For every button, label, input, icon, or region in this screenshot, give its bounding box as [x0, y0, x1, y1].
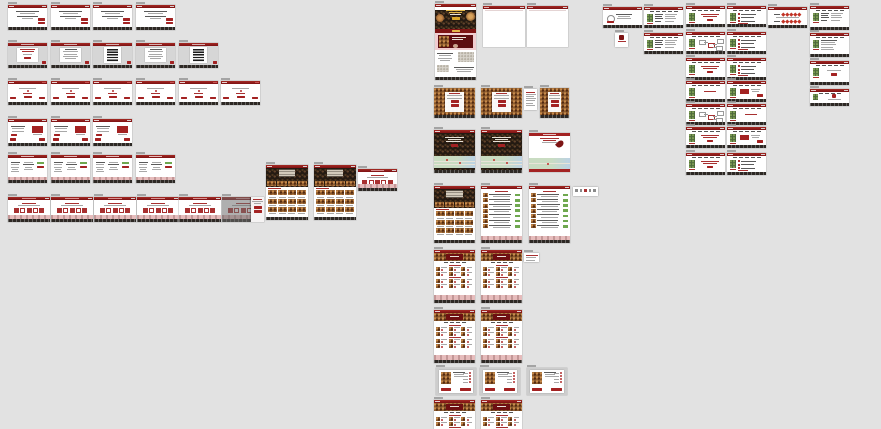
tracking-page-thumbnail[interactable]	[179, 197, 221, 222]
artboard-profile-3[interactable]	[727, 6, 766, 27]
artboard-profile-2[interactable]	[686, 6, 725, 27]
artboard-menugrid-3[interactable]	[434, 310, 475, 363]
artboard-tracking-5[interactable]	[179, 197, 221, 222]
artboard-label[interactable]	[8, 194, 17, 196]
menu-grid-thumbnail[interactable]	[481, 400, 522, 429]
artboard-contact-3[interactable]	[529, 133, 570, 172]
pline	[730, 48, 736, 49]
artboard-label[interactable]	[481, 247, 490, 249]
artboard-gallery-3[interactable]	[434, 186, 475, 243]
artboard-label[interactable]	[8, 40, 17, 42]
artboard-menugrid-1[interactable]	[434, 250, 475, 303]
chip	[707, 166, 713, 169]
hbtn	[761, 128, 765, 130]
artboard-label[interactable]	[51, 152, 60, 154]
pline	[730, 120, 736, 121]
tracking-page-thumbnail[interactable]	[137, 197, 179, 222]
artboard-itemmodal-2[interactable]	[480, 368, 520, 395]
gcell	[326, 199, 335, 206]
artboard-contact-2[interactable]	[481, 130, 522, 173]
artboard-label[interactable]	[481, 85, 490, 87]
artboard-tracking-3[interactable]	[94, 197, 136, 222]
settings-page-thumbnail[interactable]	[603, 7, 642, 28]
artboard-confirm-3[interactable]	[93, 81, 132, 105]
artboard-tracking-2[interactable]	[51, 197, 93, 222]
confirm-page-thumbnail[interactable]	[8, 81, 47, 105]
tracking-page-thumbnail[interactable]	[8, 197, 50, 222]
ln	[144, 11, 167, 12]
artboard-label[interactable]	[93, 78, 102, 80]
profile-blank-thumbnail[interactable]	[727, 104, 766, 125]
artboard-settings[interactable]	[603, 7, 642, 28]
artboard-label[interactable]	[179, 40, 188, 42]
graybody	[136, 46, 175, 65]
receipt-c-thumbnail[interactable]	[93, 43, 132, 68]
receipt-a-thumbnail[interactable]	[8, 43, 47, 68]
artboard-checkout-4[interactable]	[136, 155, 175, 183]
artboard-tracking-mini[interactable]	[358, 169, 397, 191]
chip	[707, 71, 713, 74]
artboard-label[interactable]	[768, 4, 777, 6]
rdot	[514, 329, 516, 331]
artboard-profile-15[interactable]	[686, 153, 725, 175]
artboard-label[interactable]	[483, 3, 492, 5]
artboard-checkout-2[interactable]	[51, 155, 90, 183]
artboard-label[interactable]	[51, 2, 60, 4]
form-page-thumbnail[interactable]	[51, 5, 90, 30]
artboard-login-2[interactable]	[51, 5, 90, 30]
artboard-label[interactable]	[8, 116, 17, 118]
tracking-page-thumbnail[interactable]	[94, 197, 136, 222]
checkout-page-thumbnail[interactable]	[51, 155, 90, 183]
ln	[454, 267, 460, 268]
artboard-label[interactable]	[51, 194, 60, 196]
receipt-b-thumbnail[interactable]	[136, 43, 175, 68]
ln	[776, 17, 799, 18]
photo-login-thumbnail[interactable]	[481, 88, 522, 118]
artboard-label[interactable]	[529, 130, 538, 132]
profile-rows-thumbnail[interactable]	[810, 33, 849, 57]
tdash	[733, 131, 737, 132]
artboard-profile-14[interactable]	[727, 127, 766, 148]
artboard-receipt-2[interactable]	[51, 43, 90, 68]
profile-note-thumbnail[interactable]	[810, 61, 849, 85]
artboard-label[interactable]	[179, 194, 188, 196]
contact-dark-thumbnail[interactable]	[434, 130, 475, 173]
artboard-label[interactable]	[436, 365, 445, 367]
artboard-label[interactable]	[644, 4, 653, 6]
gallery-page-thumbnail[interactable]	[434, 186, 475, 243]
artboard-label[interactable]	[136, 40, 145, 42]
artboard-receipt-1[interactable]	[8, 43, 47, 68]
lrow	[449, 332, 461, 336]
ln	[821, 44, 836, 45]
artboard-profile-10[interactable]	[727, 81, 766, 102]
hlogo	[687, 82, 692, 83]
artboard-itemmodal-1[interactable]	[436, 368, 476, 395]
artboard-checkout-1[interactable]	[8, 155, 47, 183]
blank-page-thumbnail[interactable]	[527, 6, 568, 47]
form-page-thumbnail[interactable]	[93, 5, 132, 30]
artboard-blank-2[interactable]	[527, 6, 568, 47]
profile-info-thumbnail[interactable]	[644, 33, 683, 54]
confirm-page-thumbnail[interactable]	[136, 81, 175, 105]
home-page-thumbnail[interactable]	[435, 4, 476, 80]
artboard-confirm-1[interactable]	[8, 81, 47, 105]
icon-popup-thumbnail[interactable]	[615, 33, 628, 47]
artboard-photologin-3[interactable]	[540, 88, 569, 118]
hbtn	[565, 187, 569, 189]
rcard	[117, 126, 128, 133]
tracking-page-thumbnail[interactable]	[358, 169, 397, 191]
artboard-label[interactable]	[480, 365, 489, 367]
artboard-label[interactable]	[136, 78, 145, 80]
card-page-thumbnail[interactable]	[93, 119, 132, 146]
st	[191, 208, 196, 213]
profile-tabs-text-thumbnail[interactable]	[686, 153, 725, 175]
profile-diagram-thumbnail[interactable]	[686, 104, 725, 125]
artboard-label[interactable]	[727, 124, 736, 126]
menu-grid-thumbnail[interactable]	[481, 250, 522, 303]
artboard-tracking-4[interactable]	[137, 197, 179, 222]
form-page-thumbnail[interactable]	[136, 5, 175, 30]
checkout-page-thumbnail[interactable]	[93, 155, 132, 183]
menu-grid-thumbnail[interactable]	[481, 310, 522, 363]
artboard-label[interactable]	[810, 30, 819, 32]
confirm-page-thumbnail[interactable]	[51, 81, 90, 105]
artboard-photologin-2[interactable]	[481, 88, 522, 118]
confirm-page-thumbnail[interactable]	[93, 81, 132, 105]
form-page-thumbnail[interactable]	[8, 5, 47, 30]
receipt-c-thumbnail[interactable]	[179, 43, 218, 68]
artboard-label[interactable]	[727, 55, 736, 57]
profile-info-thumbnail[interactable]	[810, 6, 849, 30]
lthumb	[461, 332, 465, 336]
profile-tabs-rows-thumbnail[interactable]	[727, 32, 766, 54]
artboard-label[interactable]	[644, 30, 653, 32]
artboard-profile-6[interactable]	[727, 32, 766, 54]
artboard-label[interactable]	[179, 78, 188, 80]
artboard-receipt-4[interactable]	[136, 43, 175, 68]
artboard-label[interactable]	[540, 85, 549, 87]
lthumb	[436, 417, 440, 421]
design-canvas[interactable]	[0, 0, 881, 429]
artboard-label[interactable]	[94, 194, 103, 196]
artboard-label[interactable]	[435, 1, 444, 3]
menu-grid-thumbnail[interactable]	[434, 400, 475, 429]
profile-icon-thumbnail[interactable]	[810, 89, 849, 106]
card	[145, 48, 167, 62]
artboard-label[interactable]	[8, 152, 17, 154]
artboard-login-3[interactable]	[93, 5, 132, 30]
artboard-profile-9[interactable]	[686, 81, 725, 102]
artboard-tracking-6[interactable]	[222, 197, 264, 222]
artboard-label[interactable]	[615, 30, 624, 32]
card-page-thumbnail[interactable]	[51, 119, 90, 146]
artboard-menugrid-2[interactable]	[481, 250, 522, 303]
artboard-label[interactable]	[810, 86, 819, 88]
artboard-label[interactable]	[93, 40, 102, 42]
card-page-thumbnail[interactable]	[8, 119, 47, 146]
modal-gray-thumbnail[interactable]	[480, 368, 520, 395]
artboard-profile-19[interactable]	[810, 61, 849, 85]
artboard-label[interactable]	[434, 127, 443, 129]
artboard-label[interactable]	[524, 86, 533, 88]
pphoto	[689, 134, 695, 142]
checkout-page-thumbnail[interactable]	[8, 155, 47, 183]
artboard-label[interactable]	[51, 116, 60, 118]
rdot	[454, 424, 456, 426]
artboard-ctxmenu-small[interactable]	[524, 253, 539, 262]
contact-light-thumbnail[interactable]	[529, 133, 570, 172]
hbtn	[720, 154, 724, 156]
rdot	[198, 90, 200, 92]
chip	[37, 166, 44, 169]
artboard-ctxmenu-tall[interactable]	[524, 89, 537, 110]
artboard-photologin-1[interactable]	[434, 88, 475, 118]
ln	[55, 169, 62, 170]
artboard-receipt-3[interactable]	[93, 43, 132, 68]
ln	[543, 140, 555, 141]
profile-tabs-rows-thumbnail[interactable]	[727, 153, 766, 175]
artboard-label[interactable]	[481, 397, 490, 399]
pcontent	[655, 13, 681, 24]
artboard-label[interactable]	[358, 166, 367, 168]
tdash	[462, 412, 466, 413]
artboard-confirm-6[interactable]	[221, 81, 260, 105]
artboard-profile-17[interactable]	[810, 6, 849, 30]
artboard-profile-18[interactable]	[810, 33, 849, 57]
artboard-carddetail-3[interactable]	[93, 119, 132, 146]
artboard-label[interactable]	[434, 397, 443, 399]
ln	[526, 94, 536, 95]
artboard-label[interactable]	[727, 3, 736, 5]
artboard-label[interactable]	[137, 194, 146, 196]
menu-popup-tall-thumbnail[interactable]	[524, 89, 537, 110]
lcol	[488, 422, 494, 426]
artboard-label[interactable]	[481, 183, 490, 185]
toolbar-popup-thumbnail[interactable]	[573, 187, 598, 196]
artboard-ratings[interactable]	[768, 7, 807, 28]
lcol	[501, 339, 507, 343]
tracking-drawer-thumbnail[interactable]	[222, 197, 264, 222]
artboard-label[interactable]	[686, 3, 695, 5]
artboard-label[interactable]	[221, 78, 230, 80]
lcol	[514, 417, 520, 421]
ln	[150, 18, 161, 19]
artboard-label[interactable]	[136, 2, 145, 4]
artboard-gallery-1[interactable]	[266, 165, 308, 220]
wtx	[441, 372, 451, 384]
artboard-label[interactable]	[51, 40, 60, 42]
gallery-page-thumbnail[interactable]	[314, 165, 356, 220]
artboard-icon-popup[interactable]	[615, 33, 628, 47]
lthumb	[449, 344, 453, 348]
profile-tabs-rows-thumbnail[interactable]	[727, 6, 766, 27]
artboard-label[interactable]	[93, 116, 102, 118]
artboard-menulist-2[interactable]	[529, 186, 570, 243]
confirm-page-thumbnail[interactable]	[221, 81, 260, 105]
checkout-page-thumbnail[interactable]	[136, 155, 175, 183]
profile-blank-thumbnail[interactable]	[686, 81, 725, 102]
artboard-label[interactable]	[603, 4, 612, 6]
artboard-label[interactable]	[481, 127, 490, 129]
photo-login-thumbnail[interactable]	[540, 88, 569, 118]
artboard-label[interactable]	[810, 3, 819, 5]
artboard-toolbar-popup[interactable]	[573, 187, 598, 196]
ln	[153, 167, 161, 168]
artboard-contact-1[interactable]	[434, 130, 475, 173]
artboard-profile-12[interactable]	[727, 104, 766, 125]
list-page-thumbnail[interactable]	[481, 186, 522, 243]
artboard-label[interactable]	[686, 29, 695, 31]
artboard-label[interactable]	[686, 101, 695, 103]
artboard-label[interactable]	[686, 78, 695, 80]
ftr	[94, 219, 136, 222]
pphoto	[730, 65, 736, 73]
profile-tabs-text-thumbnail[interactable]	[686, 6, 725, 27]
ln	[526, 105, 536, 106]
profile-diagram-thumbnail[interactable]	[686, 32, 725, 54]
artboard-menugrid-6[interactable]	[481, 400, 522, 429]
menu-grid-thumbnail[interactable]	[434, 310, 475, 363]
artboard-profile-13[interactable]	[686, 127, 725, 148]
artboard-confirm-4[interactable]	[136, 81, 175, 105]
artboard-label[interactable]	[8, 2, 17, 4]
ratings-page-thumbnail[interactable]	[768, 7, 807, 28]
ln	[439, 55, 452, 56]
ftr	[8, 180, 47, 183]
gcell	[278, 207, 287, 214]
artboard-tracking-1[interactable]	[8, 197, 50, 222]
artboard-profile-20[interactable]	[810, 89, 849, 106]
artboard-login-4[interactable]	[136, 5, 175, 30]
artboard-label[interactable]	[51, 78, 60, 80]
confirm-page-thumbnail[interactable]	[179, 81, 218, 105]
artboard-profile-1[interactable]	[644, 7, 683, 28]
ln	[489, 199, 510, 200]
artboard-label[interactable]	[266, 162, 275, 164]
artboard-carddetail-1[interactable]	[8, 119, 47, 146]
artboard-menulist-1[interactable]	[481, 186, 522, 243]
artboard-label[interactable]	[8, 78, 17, 80]
modal-gray-thumbnail[interactable]	[436, 368, 476, 395]
artboard-carddetail-2[interactable]	[51, 119, 90, 146]
ln	[542, 201, 558, 202]
ln	[821, 47, 833, 48]
contact-dark-thumbnail[interactable]	[481, 130, 522, 173]
profile-info-thumbnail[interactable]	[644, 7, 683, 28]
hlogo	[687, 105, 692, 106]
blank-page-thumbnail[interactable]	[483, 6, 525, 47]
artboard-blank-1[interactable]	[483, 6, 525, 47]
list-page-thumbnail[interactable]	[529, 186, 570, 243]
profile-redbox-thumbnail[interactable]	[727, 127, 766, 148]
artboard-label[interactable]	[527, 365, 536, 367]
artboard-profile-4[interactable]	[644, 33, 683, 54]
rdot	[441, 329, 443, 331]
artboard-label[interactable]	[686, 124, 695, 126]
artboard-label[interactable]	[434, 183, 443, 185]
hbtn	[720, 128, 724, 130]
menu-popup-small-thumbnail[interactable]	[524, 253, 539, 262]
artboard-label[interactable]	[727, 78, 736, 80]
artboard-label[interactable]	[93, 2, 102, 4]
artboard-label[interactable]	[434, 247, 443, 249]
artboard-label[interactable]	[136, 152, 145, 154]
artboard-login-1[interactable]	[8, 5, 47, 30]
lrow	[436, 327, 448, 331]
artboard-menugrid-5[interactable]	[434, 400, 475, 429]
hdr	[727, 32, 766, 35]
artboard-label[interactable]	[524, 250, 533, 252]
artboard-label[interactable]	[529, 183, 538, 185]
graybody	[179, 46, 218, 65]
artboard-label[interactable]	[686, 150, 695, 152]
artboard-itemmodal-3[interactable]	[527, 368, 567, 395]
ftr	[481, 240, 522, 243]
menu-grid-thumbnail[interactable]	[434, 250, 475, 303]
lcol	[441, 417, 447, 421]
gthumb	[436, 220, 445, 225]
artboard-label[interactable]	[434, 85, 443, 87]
hlogo	[52, 6, 57, 7]
artboard-profile-5[interactable]	[686, 32, 725, 54]
artboard-label[interactable]	[222, 194, 231, 196]
rdot	[488, 281, 490, 283]
tdash	[450, 412, 454, 413]
artboard-label[interactable]	[727, 150, 736, 152]
artboard-label[interactable]	[93, 152, 102, 154]
artboard-checkout-3[interactable]	[93, 155, 132, 183]
lcol	[441, 327, 447, 331]
artboard-home[interactable]	[435, 4, 476, 80]
modal-gray-thumbnail[interactable]	[527, 368, 567, 395]
artboard-label[interactable]	[727, 101, 736, 103]
profile-tabs-text-thumbnail[interactable]	[686, 127, 725, 148]
receipt-b-thumbnail[interactable]	[51, 43, 90, 68]
artboard-label[interactable]	[686, 55, 695, 57]
artboard-confirm-2[interactable]	[51, 81, 90, 105]
imgblock	[437, 65, 449, 72]
ln	[514, 339, 520, 340]
ln	[66, 93, 75, 94]
artboard-menugrid-4[interactable]	[481, 310, 522, 363]
st	[156, 208, 161, 213]
artboard-label[interactable]	[810, 58, 819, 60]
ln	[526, 92, 536, 93]
artboard-label[interactable]	[434, 307, 443, 309]
artboard-label[interactable]	[314, 162, 323, 164]
tdash	[733, 10, 737, 11]
hbtn	[844, 34, 848, 36]
gallery-page-thumbnail[interactable]	[266, 165, 308, 220]
artboard-profile-16[interactable]	[727, 153, 766, 175]
profile-redbox-thumbnail[interactable]	[727, 81, 766, 102]
lrow	[436, 284, 448, 288]
tracking-page-thumbnail[interactable]	[51, 197, 93, 222]
artboard-receipt-5[interactable]	[179, 43, 218, 68]
artboard-label[interactable]	[481, 307, 490, 309]
artboard-label[interactable]	[527, 3, 536, 5]
artboard-label[interactable]	[727, 29, 736, 31]
ln	[827, 70, 841, 71]
photo-login-thumbnail[interactable]	[434, 88, 475, 118]
artboard-confirm-5[interactable]	[179, 81, 218, 105]
hlogo	[687, 154, 692, 155]
artboard-profile-11[interactable]	[686, 104, 725, 125]
artboard-gallery-2[interactable]	[314, 165, 356, 220]
